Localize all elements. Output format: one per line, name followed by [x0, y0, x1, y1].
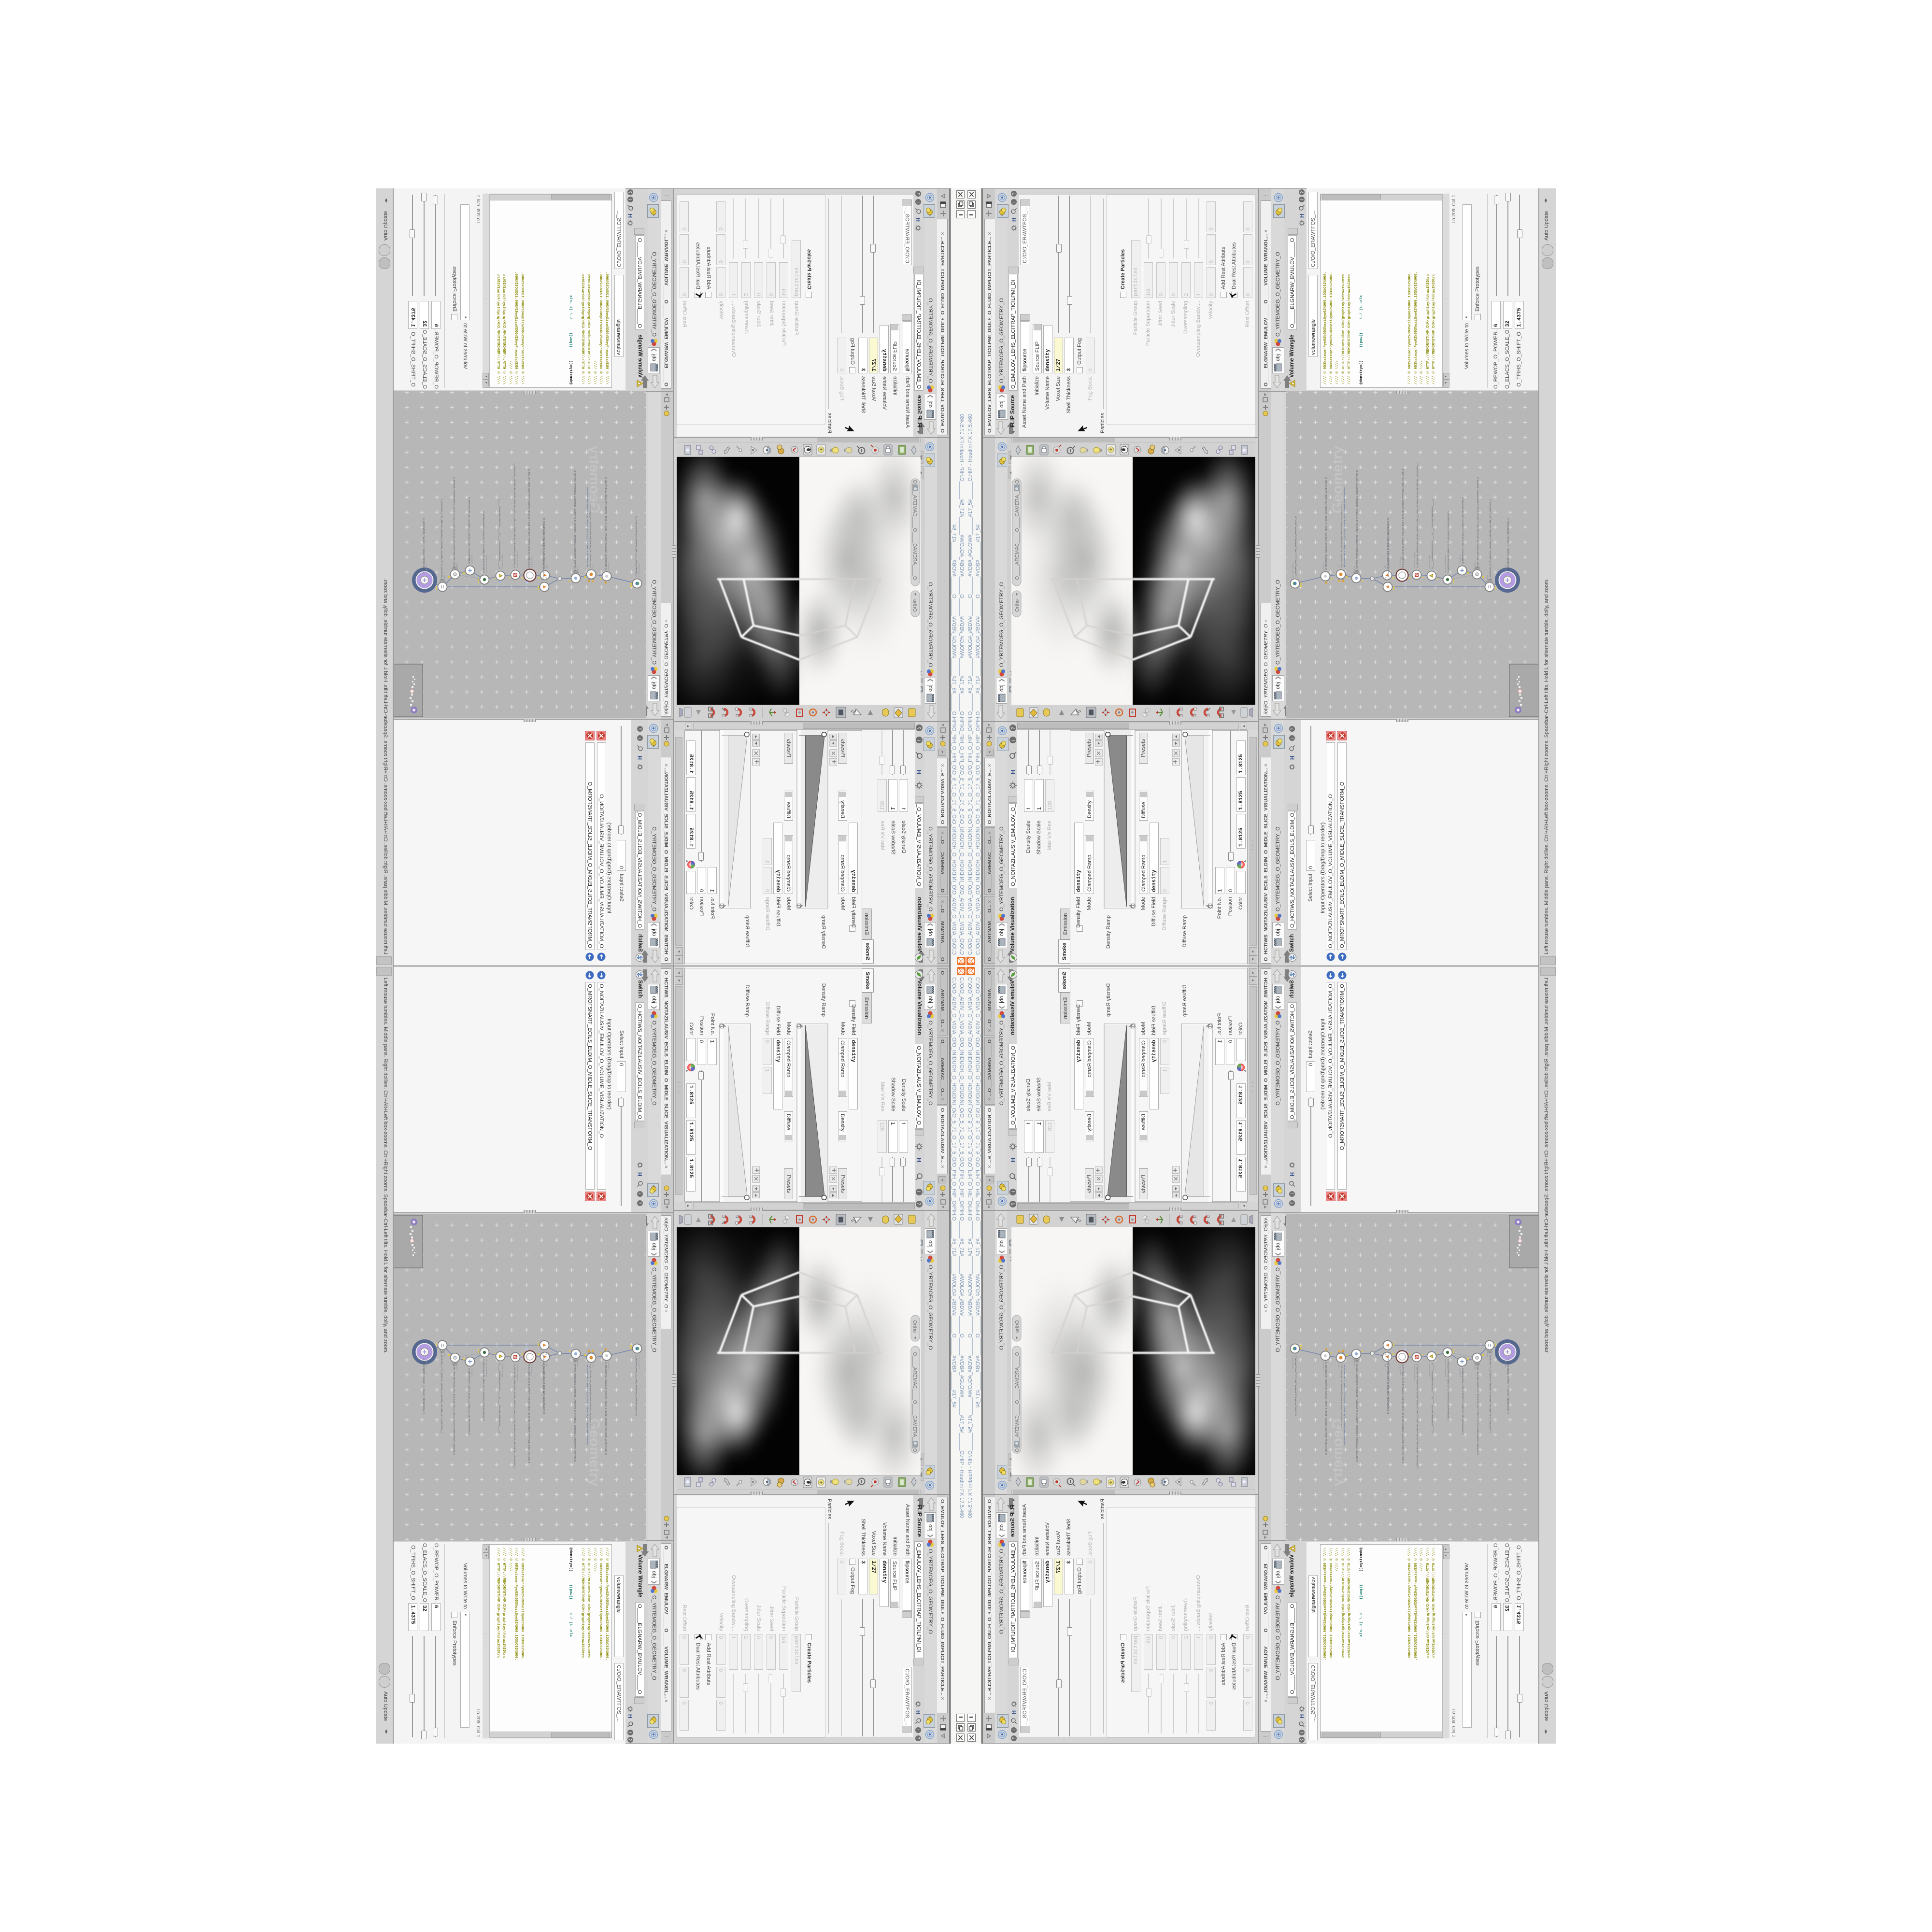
svg-text:i: i — [628, 1732, 633, 1733]
svg-text:H: H — [915, 770, 923, 774]
svg-text:O_HCTIWS_YRTEMOEG_LANRETXE_LAN: O_HCTIWS_YRTEMOEG_LANRETXE_LANRETNI_O_IN… — [574, 1361, 576, 1462]
svg-text:O_ELBUOD/EC.BO_GERUS(J)DISABLE: O_ELBUOD/EC.BO_GERUS(J)DISABLED/GENIUS3_… — [1340, 1364, 1343, 1428]
svg-text:Transform: Transform — [1459, 1368, 1461, 1378]
svg-text:O_EMARFERIW_NOGYLOP_EREHPS_EBU: O_EMARFERIW_NOGYLOP_EREHPS_EBUC_O_CUBE_S… — [605, 477, 607, 570]
svg-text:Volume Wrangle: Volume Wrangle — [1428, 554, 1431, 569]
svg-text:O_MROFSNART_ECILS_ELDIM_O_MIDL: O_MROFSNART_ECILS_ELDIM_O_MIDLE_SLICE_TR… — [1462, 497, 1464, 564]
svg-text:Volume Wrangle: Volume Wrangle — [501, 1363, 504, 1378]
svg-text:Volume Visualization: Volume Visualization — [485, 555, 488, 573]
svg-text:i: i — [1011, 740, 1016, 741]
svg-text:Ortho: Ortho — [912, 1320, 918, 1333]
svg-text:i: i — [1290, 1193, 1295, 1194]
svg-text:Transform: Transform — [1459, 554, 1461, 564]
svg-text:?: ? — [1290, 1202, 1295, 1204]
svg-text:O____AREMAC____O____CAMERA____: O____AREMAC____O____CAMERA____O — [1014, 480, 1020, 580]
svg-text:Transform: Transform — [471, 554, 473, 564]
svg-text:O_MROFSNART_TLUSER_O_RESULT_TR: O_MROFSNART_TLUSER_O_RESULT_TRANSFORM_O — [423, 1359, 425, 1414]
svg-text:Switch: Switch — [1353, 566, 1355, 571]
svg-text:O_____ELGNARW_EMULOV_____O____: O_____ELGNARW_EMULOV_____O_____VOLUME_WR… — [498, 1363, 501, 1434]
svg-text:Switch: Switch — [1353, 1361, 1355, 1366]
svg-text:i: i — [916, 1191, 921, 1192]
svg-text:O_HCTIWS_NOITAZILAUSIV_ECILS_E: O_HCTIWS_NOITAZILAUSIV_ECILS_ELDIM_O_MID… — [453, 1364, 455, 1455]
svg-text:i: i — [638, 738, 642, 739]
svg-text:?: ? — [1011, 727, 1016, 730]
svg-text:?: ? — [916, 727, 921, 730]
svg-text:Ortho: Ortho — [1014, 1320, 1020, 1333]
svg-text:O_NOITAZILAUSIV_EMULOV_O_VOLUM: O_NOITAZILAUSIV_EMULOV_O_VOLUME_VISUALIZ… — [1447, 511, 1449, 573]
svg-text:O_SNOGILOP_YRTEMOEG_MORF_EMULO: O_SNOGILOP_YRTEMOEG_MORF_EMULOV_BDV_O_VD… — [1416, 463, 1419, 568]
svg-text:PolyWire: PolyWire — [608, 1362, 610, 1370]
svg-text:?: ? — [638, 728, 642, 730]
svg-text:?: ? — [628, 191, 633, 194]
svg-text:O_SNOGILOP_YRTEMOEG_MORF_EMULO: O_SNOGILOP_YRTEMOEG_MORF_EMULOV_BDV_O_VD… — [513, 1364, 516, 1469]
svg-text:Ortho: Ortho — [912, 599, 918, 612]
svg-text:H: H — [1009, 1158, 1017, 1162]
svg-text:H: H — [1289, 1172, 1296, 1177]
svg-text:O_EMULOV_PILC_O_BDV_CLIP_VDB_V: O_EMULOV_PILC_O_BDV_CLIP_VDB_VOLUME_O — [543, 1364, 545, 1414]
svg-text:H: H — [1011, 1710, 1018, 1715]
svg-text:Switch: Switch — [456, 1364, 458, 1370]
svg-text:O_SNOGILOP_YRTEMOEG_MORF_EMULO: O_SNOGILOP_YRTEMOEG_MORF_EMULOV_BDV_O_VD… — [1416, 1364, 1419, 1469]
svg-text:O____AREMAC____O____CAMERA____: O____AREMAC____O____CAMERA____O — [1014, 1352, 1020, 1452]
svg-text:O_HCTIWS_NOITAZILAUSIV_ECILS_E: O_HCTIWS_NOITAZILAUSIV_ECILS_ELDIM_O_MID… — [1477, 1364, 1479, 1455]
svg-text:VDB from Polygons: VDB from Polygons — [516, 551, 519, 568]
svg-text:i: i — [1290, 738, 1295, 739]
svg-text:H: H — [637, 755, 643, 760]
svg-text:O_HCTIWS_YRTEMOEG_LANRETXE_LAN: O_HCTIWS_YRTEMOEG_LANRETXE_LANRETNI_O_IN… — [1356, 1361, 1358, 1462]
svg-text:O_ECAFRUS_HTIW_EMULOV_EGREM_O_: O_ECAFRUS_HTIW_EMULOV_EGREM_O_MERGE_VOLU… — [440, 498, 443, 580]
svg-text:FLIP Source: FLIP Source — [531, 556, 533, 568]
svg-text:Clip: Clip — [1384, 576, 1387, 580]
svg-text:O_NOITAZILAUSIV_EMULOV_O_VOLUM: O_NOITAZILAUSIV_EMULOV_O_VOLUME_VISUALIZ… — [1447, 1359, 1449, 1421]
svg-text:Volume Visualization: Volume Visualization — [1444, 1359, 1447, 1377]
svg-text:?: ? — [916, 1737, 921, 1739]
svg-text:O_MROFSNART_TLUSER_O_RESULT_TR: O_MROFSNART_TLUSER_O_RESULT_TRANSFORM_O — [1507, 1359, 1509, 1414]
svg-text:O_EREHPS_EBUC_O_CUBE_SPHERE_O_: O_EREHPS_EBUC_O_CUBE_SPHERE_O_EREHPS_EBU… — [1294, 1355, 1297, 1416]
svg-text:VDB from Polygons: VDB from Polygons — [1413, 1364, 1416, 1381]
svg-text:PolyWire: PolyWire — [1322, 562, 1324, 570]
svg-text:Switch: Switch — [577, 1361, 579, 1366]
svg-text:O_EMARFERIW_NOGYLOP_EREHPS_EBU: O_EMARFERIW_NOGYLOP_EREHPS_EBUC_O_CUBE_S… — [1325, 477, 1327, 570]
svg-text:O_EMULOV_PILC_O_BDV_CLIP_VDB_V: O_EMULOV_PILC_O_BDV_CLIP_VDB_VOLUME_O — [1387, 518, 1389, 568]
svg-text:Volume Visualization: Volume Visualization — [1444, 555, 1447, 573]
svg-text:O_EMULOV_LEHS_ELCITRAP_TICILPM: O_EMULOV_LEHS_ELCITRAP_TICILPMI_DIULF_O_… — [1402, 1364, 1404, 1463]
svg-text:Transform: Transform — [1504, 564, 1506, 573]
svg-text:an_CubeSphere: an_CubeSphere — [638, 1355, 640, 1369]
svg-text:Transform: Transform — [471, 1368, 473, 1378]
svg-text:Clip: Clip — [1384, 1364, 1386, 1367]
svg-text:an_CubeSphere: an_CubeSphere — [1292, 1355, 1294, 1369]
svg-text:O____AREMAC____O____CAMERA____: O____AREMAC____O____CAMERA____O — [912, 480, 918, 580]
svg-text:i: i — [916, 202, 921, 203]
svg-text:Merge: Merge — [1486, 1352, 1489, 1358]
svg-text:File: File — [1337, 1364, 1340, 1368]
svg-text:Transform: Transform — [1504, 1359, 1506, 1368]
svg-text:O_EMARFERIW_NOGYLOP_EREHPS_EBU: O_EMARFERIW_NOGYLOP_EREHPS_EBUC_O_CUBE_S… — [1325, 1362, 1327, 1455]
svg-text:O_EREHPS_EBUC_O_CUBE_SPHERE_O_: O_EREHPS_EBUC_O_CUBE_SPHERE_O_EREHPS_EBU… — [635, 1355, 638, 1416]
svg-text:?: ? — [916, 1203, 921, 1206]
svg-text:H: H — [915, 1158, 923, 1162]
svg-text:?: ? — [1012, 193, 1017, 195]
svg-text:Volume Wrangle: Volume Wrangle — [1428, 1363, 1431, 1378]
svg-text:H: H — [627, 1714, 634, 1719]
svg-text:O_NOITAZILAUSIV_EMULOV_O_VOLUM: O_NOITAZILAUSIV_EMULOV_O_VOLUME_VISUALIZ… — [483, 511, 485, 573]
svg-text:?: ? — [1012, 1737, 1017, 1739]
svg-text:Transform: Transform — [426, 1359, 428, 1368]
svg-text:O_MROFSNART_TLUSER_O_RESULT_TR: O_MROFSNART_TLUSER_O_RESULT_TRANSFORM_O — [423, 518, 425, 573]
svg-text:JBO.AND3.PETS.TRIPOLS_O_SOLRIG: JBO.AND3.PETS.TRIPOLS_O_SOLRIG_O_GENIUS3… — [1343, 1364, 1346, 1445]
svg-text:FLIP Source: FLIP Source — [531, 1364, 533, 1376]
svg-text:O_EMULOV_PILC_O_BDV_CLIP_VDB_V: O_EMULOV_PILC_O_BDV_CLIP_VDB_VOLUME_O — [543, 518, 545, 568]
svg-text:O_EMULOV_PILC_O_BDV_CLIP_VDB_V: O_EMULOV_PILC_O_BDV_CLIP_VDB_VOLUME_O — [1387, 1364, 1389, 1414]
svg-text:an_CubeSphere: an_CubeSphere — [638, 563, 640, 577]
svg-text:i: i — [1012, 1730, 1017, 1731]
svg-text:Volume Wrangle: Volume Wrangle — [501, 554, 504, 569]
svg-text:H: H — [915, 217, 922, 222]
svg-text:VDB from Polygons: VDB from Polygons — [1413, 551, 1416, 568]
svg-text:H: H — [1299, 213, 1306, 218]
svg-text:O_EMULOV_LEHS_ELCITRAP_TICILPM: O_EMULOV_LEHS_ELCITRAP_TICILPMI_DIULF_O_… — [528, 1364, 530, 1463]
svg-text:O_ECAFRUS_HTIW_EMULOV_EGREM_O_: O_ECAFRUS_HTIW_EMULOV_EGREM_O_MERGE_VOLU… — [440, 1352, 443, 1434]
svg-text:PolyWire: PolyWire — [608, 562, 610, 570]
svg-text:H: H — [627, 213, 634, 218]
svg-text:i: i — [1012, 202, 1017, 203]
svg-text:File: File — [592, 564, 595, 568]
svg-text:Clip: Clip — [1384, 565, 1386, 568]
svg-text:i: i — [638, 1193, 642, 1194]
svg-text:JBO.AND3.PETS.TRIPOLS_O_SOLRIG: JBO.AND3.PETS.TRIPOLS_O_SOLRIG_O_GENIUS3… — [586, 1364, 589, 1445]
svg-text:O_ELBUOD/EC.BO_GERUS(J)DISABLE: O_ELBUOD/EC.BO_GERUS(J)DISABLED/GENIUS3_… — [589, 504, 592, 568]
svg-text:O_ECAFRUS_HTIW_EMULOV_EGREM_O_: O_ECAFRUS_HTIW_EMULOV_EGREM_O_MERGE_VOLU… — [1489, 1352, 1492, 1434]
svg-text:Clip: Clip — [546, 1364, 548, 1367]
svg-text:JBO.AND3.PETS.TRIPOLS_O_SOLRIG: JBO.AND3.PETS.TRIPOLS_O_SOLRIG_O_GENIUS3… — [1343, 487, 1346, 568]
svg-text:Switch: Switch — [456, 562, 458, 568]
svg-text:O_EMULOV_LEHS_ELCITRAP_TICILPM: O_EMULOV_LEHS_ELCITRAP_TICILPMI_DIULF_O_… — [528, 469, 530, 568]
svg-text:O_ECAFRUS_HTIW_EMULOV_EGREM_O_: O_ECAFRUS_HTIW_EMULOV_EGREM_O_MERGE_VOLU… — [1489, 498, 1492, 580]
svg-text:PolyWire: PolyWire — [1322, 1362, 1324, 1370]
svg-text:O_____ELGNARW_EMULOV_____O____: O_____ELGNARW_EMULOV_____O_____VOLUME_WR… — [1431, 498, 1434, 569]
svg-text:O_MROFSNART_ECILS_ELDIM_O_MIDL: O_MROFSNART_ECILS_ELDIM_O_MIDLE_SLICE_TR… — [468, 497, 470, 564]
svg-text:O_HCTIWS_NOITAZILAUSIV_ECILS_E: O_HCTIWS_NOITAZILAUSIV_ECILS_ELDIM_O_MID… — [1477, 477, 1479, 568]
svg-text:Merge: Merge — [1486, 574, 1489, 580]
svg-text:O_MROFSNART_ECILS_ELDIM_O_MIDL: O_MROFSNART_ECILS_ELDIM_O_MIDLE_SLICE_TR… — [1462, 1368, 1464, 1435]
svg-text:i: i — [1011, 1191, 1016, 1192]
svg-text:O_EREHPS_EBUC_O_CUBE_SPHERE_O_: O_EREHPS_EBUC_O_CUBE_SPHERE_O_EREHPS_EBU… — [1294, 516, 1297, 577]
svg-text:H: H — [1289, 755, 1296, 760]
svg-text:i: i — [628, 199, 633, 200]
svg-text:an_CubeSphere: an_CubeSphere — [1292, 563, 1294, 577]
svg-text:O_EMARFERIW_NOGYLOP_EREHPS_EBU: O_EMARFERIW_NOGYLOP_EREHPS_EBUC_O_CUBE_S… — [605, 1362, 607, 1455]
svg-text:H: H — [1299, 1714, 1306, 1719]
svg-text:File: File — [592, 1364, 595, 1368]
svg-text:Switch: Switch — [577, 566, 579, 571]
svg-text:i: i — [1300, 199, 1305, 200]
svg-text:Clip: Clip — [546, 565, 548, 568]
svg-text:O_HCTIWS_NOITAZILAUSIV_ECILS_E: O_HCTIWS_NOITAZILAUSIV_ECILS_ELDIM_O_MID… — [453, 477, 455, 568]
svg-text:i: i — [1300, 1732, 1305, 1733]
svg-text:O_HCTIWS_YRTEMOEG_LANRETXE_LAN: O_HCTIWS_YRTEMOEG_LANRETXE_LANRETNI_O_IN… — [574, 470, 576, 571]
svg-text:Switch: Switch — [1474, 562, 1476, 568]
svg-text:Merge: Merge — [443, 1352, 446, 1358]
svg-text:Merge: Merge — [443, 574, 446, 580]
svg-text:Volume Visualization: Volume Visualization — [485, 1359, 488, 1377]
svg-text:Clip: Clip — [545, 576, 548, 580]
svg-text:O_ELBUOD/EC.BO_GERUS(J)DISABLE: O_ELBUOD/EC.BO_GERUS(J)DISABLED/GENIUS3_… — [589, 1364, 592, 1428]
svg-text:File: File — [1337, 564, 1340, 568]
svg-text:?: ? — [1011, 1203, 1016, 1206]
svg-text:H: H — [915, 1710, 922, 1715]
svg-text:Ortho: Ortho — [1014, 599, 1020, 612]
svg-text:O_MROFSNART_ECILS_ELDIM_O_MIDL: O_MROFSNART_ECILS_ELDIM_O_MIDLE_SLICE_TR… — [468, 1368, 470, 1435]
svg-text:O_NOITAZILAUSIV_EMULOV_O_VOLUM: O_NOITAZILAUSIV_EMULOV_O_VOLUME_VISUALIZ… — [483, 1359, 485, 1421]
svg-text:FLIP Source: FLIP Source — [1399, 556, 1401, 568]
svg-text:H: H — [1009, 770, 1017, 774]
svg-text:?: ? — [1290, 728, 1295, 730]
svg-text:Transform: Transform — [426, 564, 428, 573]
svg-text:i: i — [916, 740, 921, 741]
svg-text:O_MROFSNART_TLUSER_O_RESULT_TR: O_MROFSNART_TLUSER_O_RESULT_TRANSFORM_O — [1507, 518, 1509, 573]
svg-text:FLIP Source: FLIP Source — [1399, 1364, 1401, 1376]
svg-text:Clip: Clip — [1384, 1352, 1387, 1356]
svg-text:?: ? — [916, 193, 921, 195]
svg-text:O_ELBUOD/EC.BO_GERUS(J)DISABLE: O_ELBUOD/EC.BO_GERUS(J)DISABLED/GENIUS3_… — [1340, 504, 1343, 568]
svg-text:O_SNOGILOP_YRTEMOEG_MORF_EMULO: O_SNOGILOP_YRTEMOEG_MORF_EMULOV_BDV_O_VD… — [513, 463, 516, 568]
svg-text:O____AREMAC____O____CAMERA____: O____AREMAC____O____CAMERA____O — [912, 1352, 918, 1452]
svg-text:?: ? — [1300, 1738, 1305, 1741]
svg-text:O_EREHPS_EBUC_O_CUBE_SPHERE_O_: O_EREHPS_EBUC_O_CUBE_SPHERE_O_EREHPS_EBU… — [635, 516, 638, 577]
svg-text:O_HCTIWS_YRTEMOEG_LANRETXE_LAN: O_HCTIWS_YRTEMOEG_LANRETXE_LANRETNI_O_IN… — [1356, 470, 1358, 571]
svg-text:O_____ELGNARW_EMULOV_____O____: O_____ELGNARW_EMULOV_____O_____VOLUME_WR… — [498, 498, 501, 569]
svg-text:?: ? — [638, 1202, 642, 1204]
svg-text:JBO.AND3.PETS.TRIPOLS_O_SOLRIG: JBO.AND3.PETS.TRIPOLS_O_SOLRIG_O_GENIUS3… — [586, 487, 589, 568]
svg-text:Clip: Clip — [545, 1352, 548, 1356]
svg-text:H: H — [637, 1172, 643, 1177]
svg-text:O_EMULOV_LEHS_ELCITRAP_TICILPM: O_EMULOV_LEHS_ELCITRAP_TICILPMI_DIULF_O_… — [1402, 469, 1404, 568]
svg-text:Switch: Switch — [1474, 1364, 1476, 1370]
svg-text:i: i — [916, 1730, 921, 1731]
svg-text:VDB from Polygons: VDB from Polygons — [516, 1364, 519, 1381]
svg-text:H: H — [1011, 217, 1018, 222]
svg-text:?: ? — [1300, 191, 1305, 194]
svg-text:?: ? — [628, 1738, 633, 1741]
svg-text:O_____ELGNARW_EMULOV_____O____: O_____ELGNARW_EMULOV_____O_____VOLUME_WR… — [1431, 1363, 1434, 1434]
